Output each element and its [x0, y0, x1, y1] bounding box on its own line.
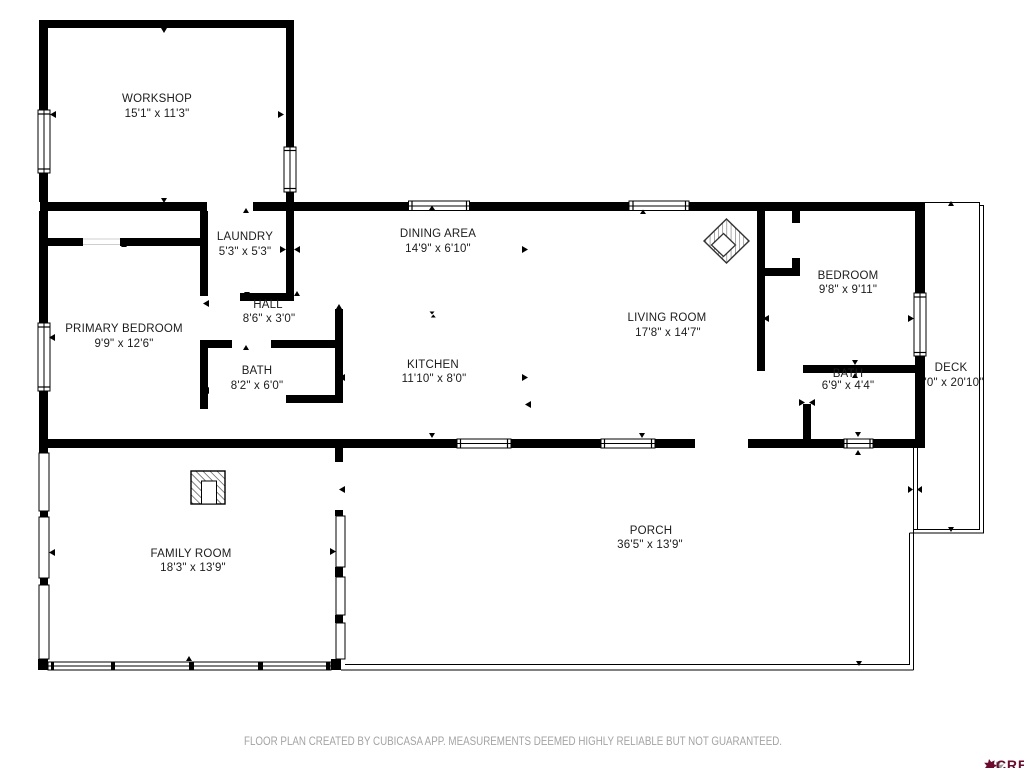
- svg-text:18'3" x 13'9": 18'3" x 13'9": [160, 562, 226, 574]
- svg-text:14'9" x 6'10": 14'9" x 6'10": [405, 243, 471, 255]
- svg-text:9'9" x 12'6": 9'9" x 12'6": [94, 338, 153, 350]
- svg-text:36'5" x 13'9": 36'5" x 13'9": [617, 539, 683, 551]
- svg-text:9'8" x 9'11": 9'8" x 9'11": [819, 284, 877, 296]
- svg-text:BEDROOM: BEDROOM: [818, 270, 879, 282]
- svg-text:BATH: BATH: [833, 368, 864, 380]
- svg-text:FAMILY ROOM: FAMILY ROOM: [150, 548, 231, 560]
- svg-text:DINING AREA: DINING AREA: [400, 228, 476, 240]
- svg-text:8'6" x 3'0": 8'6" x 3'0": [243, 313, 295, 325]
- svg-text:LIVING ROOM: LIVING ROOM: [628, 312, 707, 324]
- svg-text:PORCH: PORCH: [630, 525, 673, 537]
- svg-text:PRIMARY BEDROOM: PRIMARY BEDROOM: [65, 323, 183, 335]
- svg-text:FLOOR PLAN CREATED BY CUBICASA: FLOOR PLAN CREATED BY CUBICASA APP. MEAS…: [244, 734, 782, 748]
- svg-text:8'2" x 6'0": 8'2" x 6'0": [231, 380, 283, 392]
- svg-text:17'8" x 14'7": 17'8" x 14'7": [635, 327, 701, 339]
- svg-text:5'3" x 5'3": 5'3" x 5'3": [219, 246, 271, 258]
- svg-text:DECK: DECK: [935, 362, 968, 374]
- svg-text:11'10" x 8'0": 11'10" x 8'0": [402, 373, 467, 385]
- svg-text:KITCHEN: KITCHEN: [407, 359, 459, 371]
- svg-text:'0" x 20'10": '0" x 20'10": [924, 377, 983, 389]
- svg-text:15'1" x 11'3": 15'1" x 11'3": [125, 108, 190, 120]
- svg-text:WORKSHOP: WORKSHOP: [122, 93, 192, 105]
- svg-text:HALL: HALL: [253, 299, 283, 311]
- svg-text:CREN: CREN: [996, 757, 1024, 768]
- svg-text:LAUNDRY: LAUNDRY: [217, 231, 273, 243]
- svg-text:6'9" x 4'4": 6'9" x 4'4": [822, 380, 874, 392]
- svg-text:BATH: BATH: [242, 365, 273, 377]
